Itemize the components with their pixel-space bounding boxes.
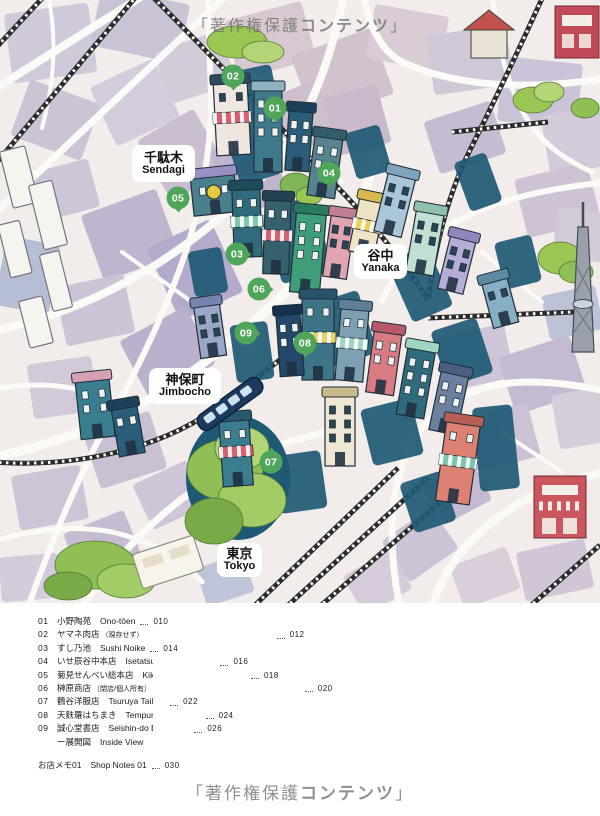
map-marker-05: 05 <box>167 187 190 210</box>
dotted-leader <box>305 691 313 692</box>
entry-note-jp: （閉店/個人所有） <box>93 684 151 694</box>
place-label-jp: 谷中 <box>367 249 393 263</box>
entry-name-jp: いせ辰谷中本店 <box>57 655 117 667</box>
place-label-sendagi: 千駄木Sendagi <box>132 145 195 182</box>
dotted-leader <box>206 718 214 719</box>
map-illustration <box>0 0 600 603</box>
dotted-leader <box>251 678 259 679</box>
entry-number: 01 <box>38 616 57 626</box>
entry-number: 07 <box>38 696 57 706</box>
entry-number: 03 <box>38 643 57 653</box>
entry-name-en: Inside View <box>100 737 143 747</box>
place-label-jimbocho: 神保町Jimbocho <box>149 368 221 404</box>
map-marker-03: 03 <box>226 243 249 266</box>
entry-number: 06 <box>38 683 57 693</box>
map-marker-01: 01 <box>264 97 287 120</box>
dotted-leader <box>150 651 158 652</box>
entry-name-jp: 誠心堂書店 <box>57 722 100 734</box>
place-label-jp: 千駄木 <box>144 151 183 165</box>
place-label-yanaka: 谷中Yanaka <box>354 244 407 279</box>
dotted-leader <box>152 768 160 769</box>
entry-name-jp: ヤマネ肉店 <box>57 628 100 640</box>
map-marker-02: 02 <box>222 65 245 88</box>
entry-name-jp: ー展開図 <box>57 736 91 748</box>
contents-row: お店メモ01Shop Notes 01030 <box>38 759 362 772</box>
entry-name-en: Sushi Noike <box>100 643 145 653</box>
entry-name-jp: 菊見せんべい総本店 <box>57 669 134 681</box>
contents-row: 03すし乃池Sushi Noike014 <box>38 642 362 655</box>
entry-number: 05 <box>38 670 57 680</box>
red-corner-store <box>555 6 599 58</box>
dotted-leader <box>194 732 202 733</box>
entry-name-jp: お店メモ01 <box>38 759 81 771</box>
entry-number: 04 <box>38 656 57 666</box>
entry-number: 09 <box>38 723 57 733</box>
dotted-leader <box>277 638 285 639</box>
place-label-jp: 神保町 <box>165 373 204 387</box>
entry-name-en: Ono-tōen <box>100 616 135 626</box>
map-area: 010203040506070809千駄木Sendagi谷中Yanaka神保町J… <box>0 0 600 603</box>
map-marker-04: 04 <box>318 162 341 185</box>
map-marker-08: 08 <box>294 332 317 355</box>
bottom-right-shop <box>534 476 586 538</box>
contents-list: 01小野陶苑Ono-tōen01002ヤマネ肉店（現存せず）Yamane Mea… <box>38 615 362 772</box>
entry-name-jp: 小野陶苑 <box>57 615 91 627</box>
entry-name-en: Shop Notes 01 <box>90 760 146 770</box>
entry-name-jp: 鶴谷洋服店 <box>57 695 100 707</box>
entry-number: 08 <box>38 710 57 720</box>
place-label-jp: 東京 <box>226 547 252 561</box>
page-number: 030 <box>165 761 600 816</box>
place-label-tokyo: 東京Tokyo <box>217 543 262 577</box>
place-label-en: Jimbocho <box>159 387 211 399</box>
entry-name-jp: 天麩羅はちまき <box>57 709 117 721</box>
book-page: 010203040506070809千駄木Sendagi谷中Yanaka神保町J… <box>0 0 600 816</box>
entry-name-jp: 榊原商店 <box>57 682 91 694</box>
entry-number: 02 <box>38 629 57 639</box>
dotted-leader <box>140 624 148 625</box>
dotted-leader <box>220 665 228 666</box>
contents-row: 07鶴谷洋服店Tsuruya Tailors022 <box>38 695 362 708</box>
entry-name-jp: すし乃池 <box>57 642 91 654</box>
map-marker-09: 09 <box>235 322 258 345</box>
place-label-en: Yanaka <box>362 263 400 275</box>
contents-row: 01小野陶苑Ono-tōen010 <box>38 615 362 628</box>
map-marker-06: 06 <box>248 278 271 301</box>
map-marker-07: 07 <box>260 451 283 474</box>
entry-note-jp: （現存せず） <box>102 630 144 640</box>
place-label-en: Sendagi <box>142 165 185 177</box>
place-label-en: Tokyo <box>224 561 256 573</box>
dotted-leader <box>170 705 178 706</box>
